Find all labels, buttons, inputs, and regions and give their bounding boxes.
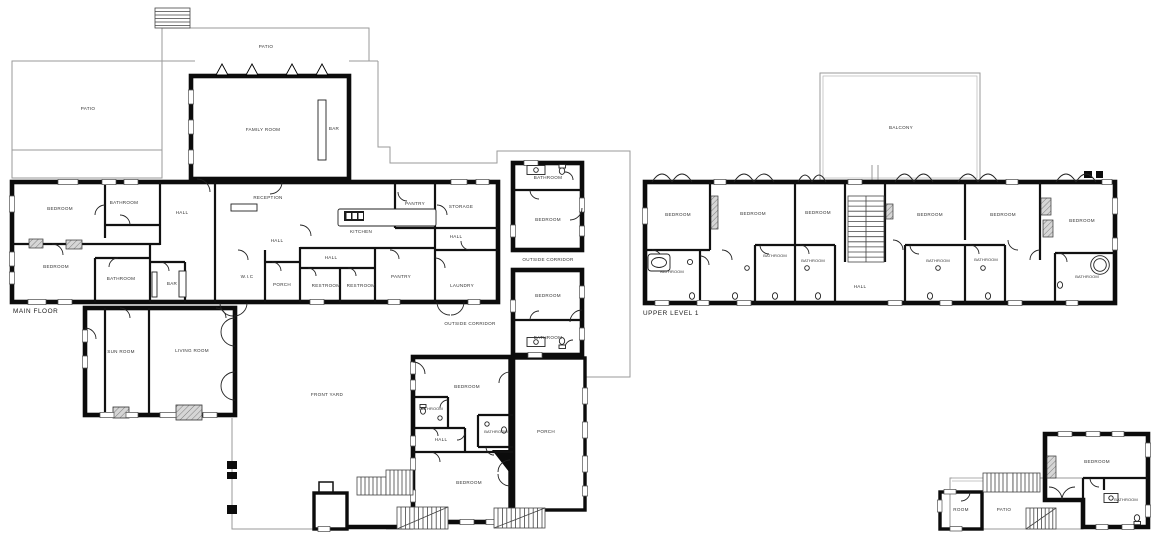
interior-walls	[12, 182, 582, 493]
toilet-icon	[689, 293, 694, 300]
kitchen-island	[338, 209, 436, 226]
room-label-bathroom-w: BATHROOM	[107, 276, 135, 281]
room-label-balcony: BALCONY	[889, 125, 913, 130]
family-bar-counter	[318, 100, 326, 160]
sink-icon	[687, 259, 692, 264]
stairs-icon	[155, 8, 190, 28]
room-label-restroom-2: RESTROOM	[347, 283, 376, 288]
room-label-bathroom-e: BATHROOM	[534, 335, 562, 340]
sink-icon	[1109, 496, 1113, 500]
sink-icon	[438, 416, 442, 420]
room-label-hall-center: HALL	[271, 238, 284, 243]
room-label-bedroom-nw: BEDROOM	[47, 206, 73, 211]
room-label-front-yard: FRONT YARD	[311, 392, 344, 397]
room-label-bar: BAR	[329, 126, 340, 131]
toilet-icon	[559, 168, 564, 175]
room-label-patio-top: PATIO	[259, 44, 274, 49]
room-label-living-room: LIVING ROOM	[175, 348, 209, 353]
room-label-bedroom-2: BEDROOM	[740, 211, 766, 216]
room-label-hall-mid: HALL	[325, 255, 338, 260]
reception-desk	[231, 204, 257, 211]
room-label-bathroom-3: BATHROOM	[801, 258, 825, 263]
room-label-pantry-lower: PANTRY	[391, 274, 411, 279]
room-label-bedroom-5: BEDROOM	[990, 212, 1016, 217]
sink-icon	[936, 266, 941, 271]
room-label-guest-bathroom: BATHROOM	[1114, 497, 1138, 502]
room-label-bathroom-6: BATHROOM	[1075, 274, 1099, 279]
sink-icon	[981, 266, 986, 271]
room-label-reception: RECEPTION	[253, 195, 282, 200]
room-label-sun-room: SUN ROOM	[107, 349, 135, 354]
room-label-hall-storage: HALL	[450, 234, 463, 239]
room-label-storage: STORAGE	[449, 204, 473, 209]
closet-hatch	[1047, 456, 1056, 478]
room-label-hall: HALL	[854, 284, 867, 289]
upper-level-plan: BALCONY BEDROOM BEDROOM BEDROOM BEDROOM …	[642, 73, 1117, 317]
room-label-bedroom-ne: BEDROOM	[535, 217, 561, 222]
room-label-guest-bedroom: BEDROOM	[1084, 459, 1110, 464]
room-label-wic: W.I.C	[241, 274, 254, 279]
room-label-bathroom-ne: BATHROOM	[534, 175, 562, 180]
sink-icon	[485, 422, 489, 426]
room-label-bedroom-4: BEDROOM	[917, 212, 943, 217]
room-label-bar-lounge: BAR	[167, 281, 178, 286]
room-label-bathroom-s2: BATHROOM	[484, 429, 508, 434]
lounge-bar-counter	[179, 271, 186, 297]
toilet-icon	[1134, 515, 1139, 522]
room-label-bathroom-1: BATHROOM	[660, 269, 684, 274]
room-label-family-room: FAMILY ROOM	[246, 127, 281, 132]
room-label-patio-left: PATIO	[81, 106, 96, 111]
room-label-bathroom-nw: BATHROOM	[110, 200, 138, 205]
room-label-porch-south: PORCH	[537, 429, 555, 434]
room-label-restroom-1: RESTROOM	[312, 283, 341, 288]
room-label-bathroom-5: BATHROOM	[974, 257, 998, 262]
room-label-bedroom-e: BEDROOM	[535, 293, 561, 298]
outer-walls	[12, 76, 585, 529]
room-label-guest-patio: PATIO	[997, 507, 1012, 512]
room-label-hall-nw: HALL	[176, 210, 189, 215]
room-label-kitchen: KITCHEN	[350, 229, 372, 234]
room-label-bathroom-s1: BATHROOM	[419, 406, 443, 411]
room-label-outside-corridor-east: OUTSIDE CORRIDOR	[522, 257, 574, 262]
toilet-icon	[927, 293, 932, 300]
bath-fixtures	[420, 165, 566, 434]
room-label-outside-corridor-south: OUTSIDE CORRIDOR	[444, 321, 496, 326]
floor-plan-canvas: PATIO PATIO FAMILY ROOM BAR BEDROOM BATH…	[0, 0, 1152, 536]
chimney-marks	[872, 165, 1103, 182]
room-label-pantry-top: PANTRY	[405, 201, 425, 206]
sink-icon	[805, 266, 810, 271]
guest-house-plan: BEDROOM BATHROOM ROOM PATIO	[937, 431, 1150, 531]
room-label-bedroom-s1: BEDROOM	[454, 384, 480, 389]
room-label-bathroom-2: BATHROOM	[763, 253, 787, 258]
window-chevrons	[216, 64, 328, 75]
room-labels: PATIO PATIO FAMILY ROOM BAR BEDROOM BATH…	[13, 44, 574, 485]
sink-icon	[534, 340, 539, 345]
room-label-bedroom-1: BEDROOM	[665, 212, 691, 217]
toilet-icon	[985, 293, 990, 300]
sink-icon	[534, 168, 539, 173]
room-label-porch-inner: PORCH	[273, 282, 291, 287]
room-label-bedroom-6: BEDROOM	[1069, 218, 1095, 223]
room-label-hall-s: HALL	[435, 437, 448, 442]
upper-level-title: UPPER LEVEL 1	[643, 310, 699, 317]
toilet-icon	[815, 293, 820, 300]
room-label-bedroom-3: BEDROOM	[805, 210, 831, 215]
sink-icon	[745, 266, 750, 271]
room-label-bedroom-w: BEDROOM	[43, 264, 69, 269]
outer-walls	[1045, 434, 1148, 527]
room-label-laundry: LAUNDRY	[450, 283, 474, 288]
toilet-icon	[732, 293, 737, 300]
room-label-guest-room: ROOM	[953, 507, 968, 512]
main-floor-plan: PATIO PATIO FAMILY ROOM BAR BEDROOM BATH…	[9, 8, 630, 532]
stairs-icon	[848, 196, 884, 262]
door-arcs	[52, 172, 582, 486]
room-label-bedroom-s2: BEDROOM	[456, 480, 482, 485]
room-label-bathroom-4: BATHROOM	[926, 258, 950, 263]
main-floor-title: MAIN FLOOR	[13, 308, 58, 315]
toilet-icon	[1057, 282, 1062, 289]
windows	[9, 90, 587, 532]
toilet-icon	[772, 293, 777, 300]
